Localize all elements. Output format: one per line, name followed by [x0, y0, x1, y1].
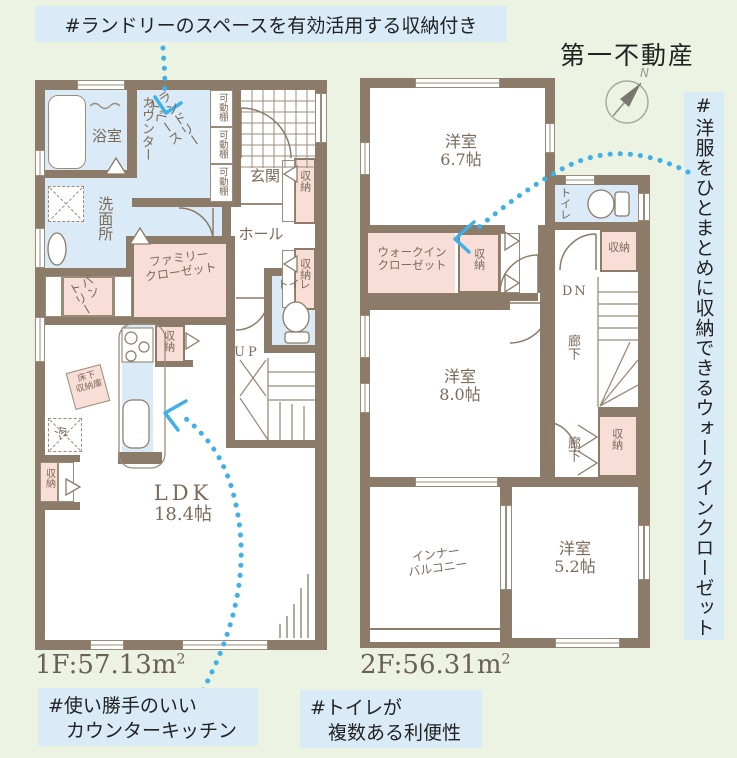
label-shelf-2: 可動棚 — [216, 130, 227, 159]
label-bed52-l1: 洋室 — [528, 540, 622, 558]
label-entrance: 玄関 — [240, 168, 290, 185]
tag-multiple-toilets: #トイレが 複数ある利便性 — [300, 690, 482, 748]
label-storage-entrance: 収納 — [298, 170, 311, 192]
washbasin — [48, 233, 66, 265]
label-storage-kitchen: 収納 — [162, 330, 175, 352]
tag-multiple-toilets-l1: #トイレが — [310, 696, 472, 721]
label-storage-2f-low: 収納 — [610, 428, 623, 450]
corner-hatch — [280, 574, 308, 638]
label-toilet-1f: トイレ — [274, 279, 314, 292]
area-2f-sup: 2 — [502, 651, 511, 667]
label-storage-wic: 収納 — [472, 248, 485, 270]
arrow-kitchen — [165, 401, 241, 690]
bath-wave — [90, 104, 120, 109]
label-up: UP — [234, 346, 260, 361]
label-hall: ホール — [234, 226, 288, 243]
label-dn: DN — [562, 285, 588, 300]
bifold-door — [578, 425, 597, 475]
stairs-1f — [240, 358, 315, 440]
compass-icon — [606, 81, 648, 123]
label-ldk-l1: LDK — [137, 481, 229, 505]
kitchen-fixtures — [119, 324, 165, 468]
area-1f-sup: 2 — [177, 651, 186, 667]
label-bed67: 洋室 6.7帖 — [412, 133, 510, 170]
area-1f-value: 1F:57.13m — [35, 650, 177, 680]
washer-x — [50, 188, 82, 450]
label-corridor-up: 廊下 — [564, 334, 579, 360]
label-shelf-3: 可動棚 — [216, 167, 227, 196]
tag-counter-kitchen-l1: #使い勝手のいい — [48, 694, 248, 719]
label-bed52-l2: 5.2帖 — [528, 558, 622, 576]
floorplan-page: { "palette": { "bg": "#edf3e2", "wall": … — [0, 0, 737, 758]
label-bed67-l2: 6.7帖 — [412, 151, 510, 169]
label-bed80: 洋室 8.0帖 — [410, 368, 510, 405]
label-bed80-l2: 8.0帖 — [410, 386, 510, 404]
label-ldk: LDK 18.4帖 — [137, 481, 229, 526]
label-bed52: 洋室 5.2帖 — [528, 540, 622, 577]
label-storage-bottomleft: 収納 — [43, 468, 55, 488]
tag-multiple-toilets-l2: 複数ある利便性 — [310, 721, 472, 746]
stairs-2f — [598, 277, 638, 407]
tag-counter-kitchen: #使い勝手のいい カウンターキッチン — [38, 688, 258, 746]
label-bed67-l1: 洋室 — [412, 133, 510, 151]
plan-decoration-layer — [0, 0, 737, 758]
tag-counter-kitchen-l2: カウンターキッチン — [48, 719, 248, 744]
label-wic-2f-l2: クローゼット — [368, 259, 456, 272]
label-shelf-1: 可動棚 — [216, 93, 227, 122]
label-storage-2f-top: 収納 — [600, 242, 638, 255]
label-storage-hall: 収納 — [298, 258, 311, 280]
label-bed80-l1: 洋室 — [410, 368, 510, 386]
label-corridor-low: 廊下 — [564, 436, 579, 462]
label-ldk-l2: 18.4帖 — [137, 505, 229, 526]
toilet-fixture-1f — [283, 302, 309, 343]
entrance-tiles — [241, 90, 315, 168]
area-label-2f: 2F:56.31m2 — [360, 650, 510, 680]
label-toilet-2f: トイレ — [558, 187, 571, 220]
label-bath: 浴室 — [84, 128, 130, 145]
toilet-fixture-2f — [588, 190, 629, 218]
area-2f-value: 2F:56.31m — [360, 650, 502, 680]
label-wic-2f: ウォークイン クローゼット — [368, 246, 456, 272]
area-label-1f: 1F:57.13m2 — [35, 650, 185, 680]
label-washroom: 洗面所 — [96, 196, 113, 241]
